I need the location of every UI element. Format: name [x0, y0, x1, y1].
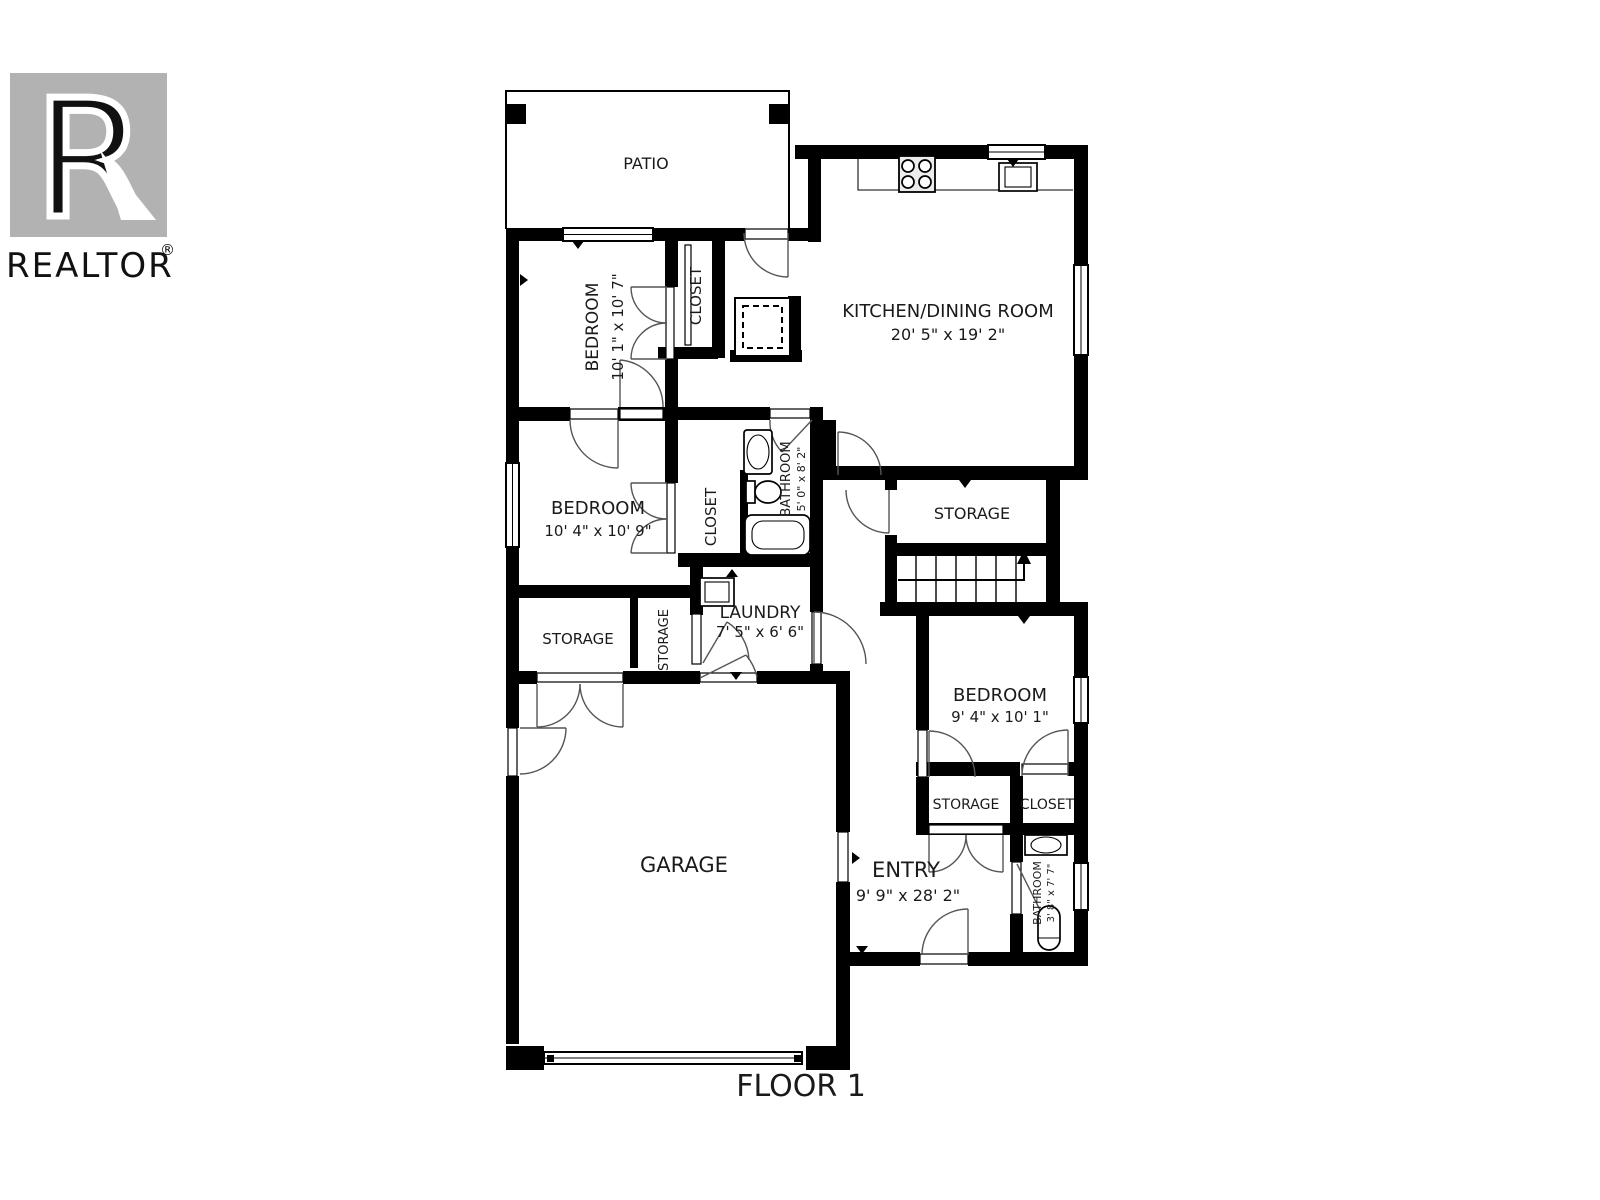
room-label-closet-top: CLOSET [687, 266, 705, 325]
room-label-laundry: LAUNDRY [720, 603, 801, 623]
bathroom-main-toilet-icon [746, 481, 781, 503]
room-label-closet-entry: CLOSET [1020, 797, 1075, 813]
room-dims-kitchen: 20' 5" x 19' 2" [891, 325, 1005, 344]
room-label-garage: GARAGE [640, 853, 728, 877]
room-label-storage-entry: STORAGE [933, 797, 1000, 813]
floor-plan: R REALTOR ® [0, 0, 1600, 1200]
kitchen-counter [858, 159, 1073, 190]
room-dims-laundry: 7' 5" x 6' 6" [716, 623, 804, 641]
window-patio-slider [563, 228, 653, 241]
realtor-wordmark: REALTOR [6, 246, 174, 286]
room-label-patio: PATIO [623, 154, 668, 173]
window-bedroom-right [1074, 677, 1088, 723]
room-dims-bedroom-top: 10' 1" x 10' 7" [609, 273, 627, 380]
stove-icon [899, 156, 935, 192]
realtor-logo-letter: R [34, 66, 147, 255]
room-label-bathroom-main: BATHROOM [779, 441, 794, 516]
window-kitchen-right [1074, 265, 1088, 355]
room-label-storage-small: STORAGE [657, 609, 672, 671]
registered-trademark-symbol: ® [160, 241, 175, 259]
room-label-bathroom-entry: BATHROOM [1031, 861, 1044, 925]
floor-title: FLOOR 1 [736, 1069, 866, 1104]
realtor-logo: R REALTOR ® [6, 66, 175, 286]
kitchen-sink-icon [999, 163, 1037, 191]
window-bedroom-middle-left [506, 463, 519, 547]
window-kitchen-top [988, 145, 1045, 159]
room-label-entry: ENTRY [872, 858, 940, 882]
patio-post-right [769, 104, 789, 124]
room-dims-entry: 9' 9" x 28' 2" [856, 886, 960, 905]
bathroom-entry-sink-icon [1025, 835, 1067, 855]
room-label-kitchen: KITCHEN/DINING ROOM [842, 301, 1054, 322]
patio-post-left [506, 104, 526, 124]
window-bathroom-entry [1074, 863, 1088, 910]
floor-plan-page: R REALTOR ® [0, 0, 1600, 1200]
staircase [898, 550, 1031, 602]
room-dims-bathroom-entry: 3' 8" x 7' 7" [1046, 864, 1057, 923]
garage-door [544, 1052, 802, 1064]
room-label-closet-middle: CLOSET [702, 487, 720, 546]
room-label-storage-hall: STORAGE [934, 504, 1010, 523]
stairs-direction-arrow [898, 562, 1024, 580]
room-dims-bedroom-right: 9' 4" x 10' 1" [951, 708, 1049, 726]
washer-icon [700, 578, 734, 606]
room-label-bedroom-right: BEDROOM [953, 685, 1047, 706]
bathroom-main-sink-icon [744, 430, 772, 474]
room-label-storage-left: STORAGE [542, 630, 613, 648]
room-label-bedroom-middle: BEDROOM [551, 498, 645, 519]
room-dims-bathroom-main: 5' 0" x 8' 2" [795, 447, 808, 512]
bathtub-icon [745, 515, 810, 555]
utility-box [735, 298, 790, 356]
room-dims-bedroom-middle: 10' 4" x 10' 9" [544, 522, 651, 540]
room-label-bedroom-top: BEDROOM [583, 283, 603, 372]
